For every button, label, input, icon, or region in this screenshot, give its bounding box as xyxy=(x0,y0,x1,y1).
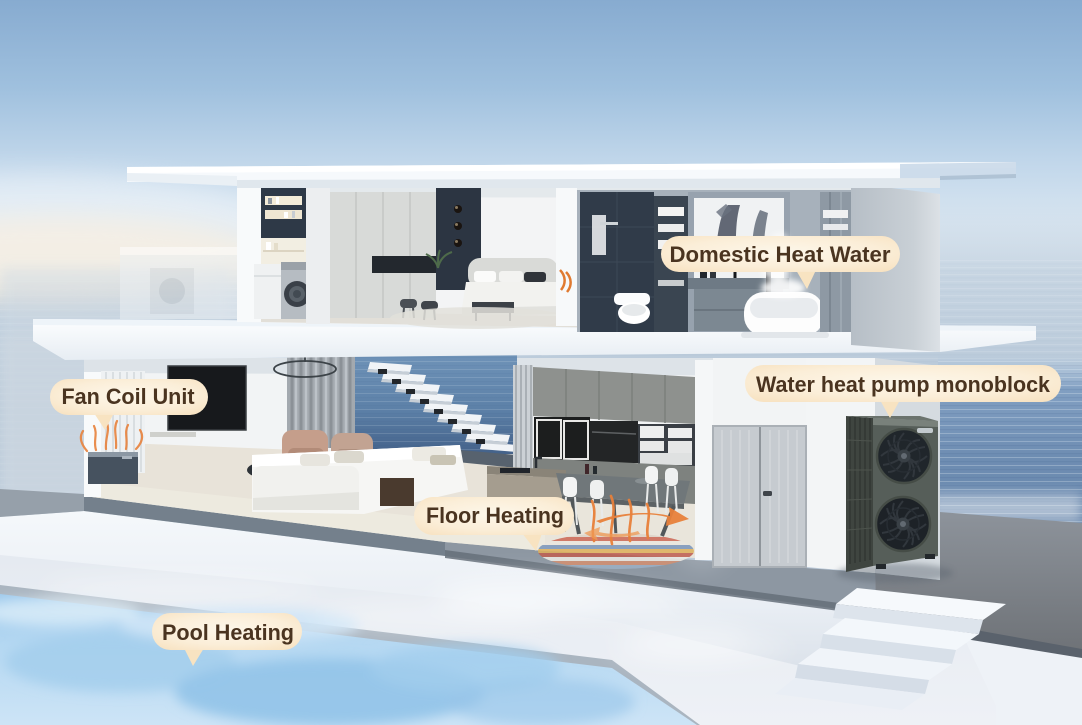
svg-text:Fan Coil Unit: Fan Coil Unit xyxy=(62,384,196,409)
svg-text:Water heat pump monoblock: Water heat pump monoblock xyxy=(756,372,1051,397)
svg-text:Floor Heating: Floor Heating xyxy=(426,503,564,528)
svg-text:Pool Heating: Pool Heating xyxy=(162,620,294,645)
svg-text:Domestic Heat Water: Domestic Heat Water xyxy=(670,242,891,267)
